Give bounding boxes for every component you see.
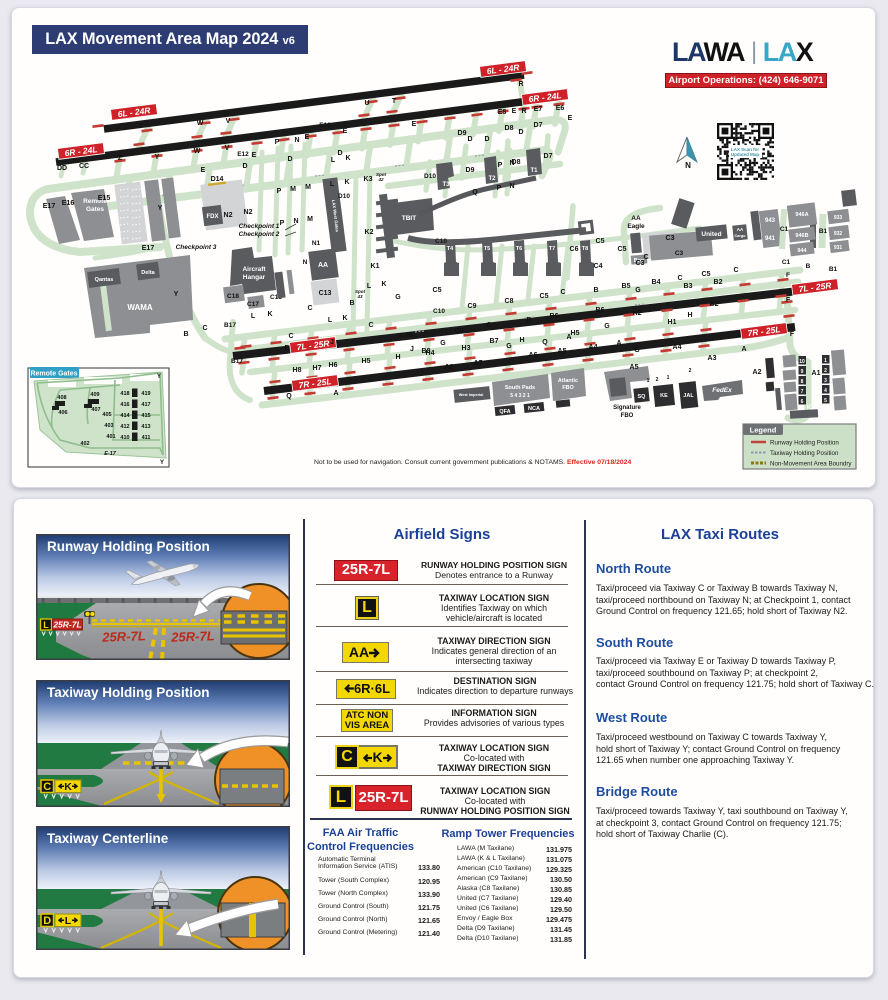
svg-text:D7: D7	[544, 153, 553, 160]
svg-text:W: W	[197, 120, 204, 127]
svg-text:B: B	[349, 300, 354, 307]
svg-text:C5: C5	[433, 287, 442, 294]
svg-text:2: 2	[824, 368, 827, 374]
svg-text:418: 418	[120, 391, 129, 397]
svg-text:D9: D9	[466, 167, 475, 174]
svg-text:H2: H2	[633, 310, 642, 317]
svg-text:E: E	[252, 152, 257, 159]
svg-text:E17: E17	[43, 203, 56, 210]
svg-text:6: 6	[801, 399, 804, 405]
svg-text:Y: Y	[157, 374, 161, 380]
svg-text:K: K	[345, 155, 350, 162]
svg-text:AA: AA	[318, 262, 328, 269]
svg-text:C5: C5	[596, 238, 605, 245]
svg-text:T4: T4	[447, 246, 454, 252]
svg-text:5: 5	[824, 398, 827, 404]
svg-text:5 4 3 2 1: 5 4 3 2 1	[510, 393, 530, 399]
svg-text:TBIT: TBIT	[402, 215, 416, 222]
svg-text:Checkpoint 1: Checkpoint 1	[239, 223, 280, 230]
svg-text:407: 407	[91, 407, 100, 413]
svg-text:Remote Gates: Remote Gates	[30, 371, 77, 378]
svg-text:7R - 25L: 7R - 25L	[747, 324, 781, 338]
svg-text:Q: Q	[542, 339, 548, 346]
svg-text:DD: DD	[57, 165, 67, 172]
svg-text:B6: B6	[596, 307, 605, 314]
svg-text:P: P	[498, 162, 503, 169]
svg-text:E6: E6	[556, 105, 565, 112]
svg-text:Updated Map: Updated Map	[731, 152, 760, 157]
svg-text:Q: Q	[286, 393, 292, 400]
svg-text:A1: A1	[812, 370, 821, 377]
svg-text:Q: Q	[472, 189, 478, 196]
svg-text:K: K	[344, 179, 349, 186]
svg-text:C3: C3	[636, 260, 645, 267]
svg-text:Delta: Delta	[141, 270, 155, 276]
svg-text:C4: C4	[594, 263, 603, 270]
svg-text:Aircraft: Aircraft	[242, 266, 266, 273]
svg-text:L: L	[331, 157, 336, 164]
svg-text:415: 415	[141, 413, 150, 419]
svg-text:L: L	[328, 317, 333, 324]
svg-text:D: D	[43, 915, 51, 927]
svg-text:N: N	[509, 183, 514, 190]
svg-text:K3: K3	[364, 176, 373, 183]
svg-text:6L - 24R: 6L - 24R	[117, 105, 152, 119]
svg-text:W: W	[194, 148, 201, 155]
svg-text:A5: A5	[558, 348, 567, 355]
svg-text:1: 1	[824, 358, 827, 364]
svg-text:Eagle: Eagle	[627, 223, 645, 230]
svg-text:C13: C13	[319, 290, 332, 297]
svg-text:406: 406	[58, 410, 67, 416]
svg-text:944: 944	[797, 248, 807, 254]
svg-text:H: H	[687, 312, 692, 319]
svg-text:A2: A2	[753, 369, 762, 376]
svg-text:NCA: NCA	[528, 406, 540, 412]
svg-text:B1: B1	[819, 228, 828, 235]
svg-text:T3: T3	[442, 182, 450, 188]
svg-text:FBO: FBO	[621, 413, 634, 419]
svg-text:417: 417	[141, 402, 150, 408]
svg-text:G: G	[395, 294, 401, 301]
svg-text:7R - 25L: 7R - 25L	[298, 376, 332, 390]
svg-text:M: M	[307, 216, 313, 223]
svg-text:A7: A7	[474, 360, 483, 367]
svg-text:Y: Y	[139, 123, 144, 130]
svg-text:D: D	[242, 163, 247, 170]
svg-text:H3: H3	[462, 345, 471, 352]
svg-text:B5: B5	[622, 283, 631, 290]
svg-text:E10: E10	[319, 122, 331, 129]
svg-text:F: F	[790, 331, 795, 338]
svg-text:E: E	[512, 108, 517, 115]
svg-text:C17: C17	[247, 301, 259, 308]
svg-text:A8: A8	[445, 364, 454, 371]
svg-text:L: L	[65, 915, 72, 927]
svg-text:408: 408	[57, 395, 66, 401]
svg-text:E12: E12	[237, 151, 249, 158]
svg-text:T5: T5	[484, 246, 490, 252]
svg-text:B2: B2	[710, 301, 719, 308]
svg-text:T: T	[392, 98, 397, 105]
svg-text:P: P	[280, 220, 285, 227]
svg-text:932: 932	[834, 231, 843, 237]
svg-text:T2: T2	[488, 176, 496, 182]
svg-text:7: 7	[801, 389, 804, 395]
svg-text:AA: AA	[631, 215, 641, 222]
svg-text:D: D	[484, 136, 489, 143]
svg-text:Qantas: Qantas	[95, 277, 114, 283]
svg-text:E: E	[201, 167, 206, 174]
svg-text:C: C	[307, 305, 312, 312]
svg-text:Taxiway Centerline: Taxiway Centerline	[47, 831, 169, 846]
svg-text:K: K	[342, 315, 347, 322]
svg-text:405: 405	[102, 412, 111, 418]
svg-text:P: P	[277, 188, 282, 195]
svg-text:A: A	[616, 340, 621, 347]
svg-text:FBO: FBO	[562, 385, 574, 391]
svg-text:C1: C1	[780, 226, 789, 233]
svg-text:7L - 25R: 7L - 25R	[798, 280, 833, 294]
svg-text:P: P	[275, 139, 280, 146]
svg-text:T7: T7	[549, 246, 555, 252]
svg-text:E16: E16	[62, 200, 75, 207]
svg-text:E15: E15	[98, 195, 111, 202]
svg-text:N: N	[685, 161, 691, 170]
svg-text:T1: T1	[530, 168, 538, 174]
svg-text:C3: C3	[666, 235, 675, 242]
svg-text:401: 401	[106, 434, 115, 440]
svg-text:A: A	[741, 346, 746, 353]
svg-text:Taxiway Holding Position: Taxiway Holding Position	[47, 685, 210, 700]
svg-text:E8: E8	[498, 109, 507, 116]
svg-text:25R-7L: 25R-7L	[52, 620, 81, 630]
svg-text:Z: Z	[118, 155, 123, 162]
svg-text:D9: D9	[458, 130, 467, 137]
svg-text:B2: B2	[714, 279, 723, 286]
svg-text:B1: B1	[829, 266, 838, 273]
svg-text:L: L	[43, 620, 49, 630]
svg-text:N: N	[303, 259, 308, 266]
svg-text:E: E	[568, 115, 573, 122]
svg-text:C18: C18	[227, 293, 239, 300]
svg-text:C9: C9	[455, 328, 464, 335]
svg-text:H5: H5	[362, 358, 371, 365]
svg-text:United: United	[701, 231, 721, 238]
svg-text:F: F	[786, 272, 790, 279]
svg-text:413: 413	[141, 424, 150, 430]
svg-text:Cargo: Cargo	[735, 234, 747, 238]
svg-text:U: U	[364, 100, 369, 107]
svg-text:2: 2	[689, 368, 692, 374]
svg-text:Non-Movement Area Boundry: Non-Movement Area Boundry	[770, 461, 852, 468]
svg-text:E-17: E-17	[104, 451, 117, 457]
svg-text:A5: A5	[630, 364, 639, 371]
svg-text:Hangar: Hangar	[243, 274, 266, 281]
svg-text:Gates: Gates	[86, 206, 104, 213]
svg-text:H4: H4	[426, 350, 435, 357]
svg-text:E: E	[412, 121, 417, 128]
svg-text:R: R	[518, 81, 523, 88]
svg-text:K1: K1	[371, 263, 380, 270]
svg-text:K2: K2	[365, 229, 374, 236]
svg-text:West Imperial: West Imperial	[459, 393, 484, 397]
svg-text:9: 9	[801, 369, 804, 375]
svg-text:FDX: FDX	[207, 214, 219, 220]
svg-text:D: D	[518, 129, 523, 136]
svg-text:25R-7L: 25R-7L	[101, 628, 146, 645]
svg-text:J: J	[410, 346, 414, 353]
svg-text:Not to be used for navigation.: Not to be used for navigation. Consult c…	[314, 459, 631, 466]
svg-text:941: 941	[765, 236, 776, 242]
svg-text:C10: C10	[435, 238, 447, 245]
svg-text:Y: Y	[174, 291, 179, 298]
svg-text:8: 8	[801, 379, 804, 385]
svg-text:1: 1	[667, 375, 670, 381]
svg-text:A6: A6	[529, 352, 538, 359]
svg-text:B7: B7	[490, 338, 499, 345]
svg-text:QFA: QFA	[499, 409, 510, 415]
svg-text:L: L	[251, 313, 256, 320]
svg-text:H8: H8	[293, 367, 302, 374]
svg-text:P: P	[497, 185, 502, 192]
svg-text:N: N	[294, 137, 299, 144]
svg-text:C3: C3	[675, 250, 684, 257]
svg-text:E17: E17	[142, 245, 155, 252]
svg-text:D: D	[467, 136, 472, 143]
svg-text:N2: N2	[244, 209, 253, 216]
svg-text:C5: C5	[702, 271, 711, 278]
svg-text:Runway Holding Position: Runway Holding Position	[47, 539, 210, 554]
svg-text:K: K	[267, 311, 272, 318]
svg-text:42: 42	[377, 177, 384, 182]
svg-text:2: 2	[656, 377, 659, 383]
svg-text:F: F	[786, 297, 791, 304]
svg-text:C9: C9	[468, 303, 477, 310]
svg-text:R: R	[521, 108, 526, 115]
svg-text:E7: E7	[534, 106, 543, 113]
svg-text:Y: Y	[155, 154, 160, 161]
svg-text:B: B	[806, 263, 811, 270]
svg-text:943: 943	[765, 218, 776, 224]
svg-text:B: B	[593, 287, 598, 294]
svg-text:H7: H7	[313, 365, 322, 372]
svg-text:N: N	[293, 218, 298, 225]
svg-text:403: 403	[104, 423, 113, 429]
svg-text:C: C	[486, 322, 491, 329]
svg-text:A: A	[333, 390, 338, 397]
svg-text:1: 1	[647, 378, 650, 384]
svg-text:T8: T8	[582, 246, 588, 252]
svg-text:B17: B17	[224, 322, 236, 329]
svg-text:409: 409	[90, 392, 99, 398]
svg-text:C: C	[733, 267, 738, 274]
svg-text:E: E	[305, 134, 310, 141]
svg-text:H: H	[395, 354, 400, 361]
svg-text:B: B	[183, 331, 188, 338]
svg-text:L: L	[330, 181, 335, 188]
svg-text:C1: C1	[782, 259, 791, 266]
svg-text:C10: C10	[400, 332, 412, 339]
svg-text:C: C	[288, 333, 293, 340]
svg-text:A4: A4	[589, 344, 598, 351]
svg-text:C6: C6	[570, 246, 579, 253]
svg-text:4: 4	[824, 388, 827, 394]
svg-text:C: C	[43, 781, 51, 793]
svg-text:B6: B6	[550, 313, 559, 320]
svg-text:A3: A3	[708, 355, 717, 362]
svg-text:B4: B4	[652, 279, 661, 286]
svg-text:N2: N2	[224, 212, 233, 219]
svg-text:J: J	[330, 339, 334, 346]
svg-text:G: G	[635, 287, 641, 294]
svg-text:SQ: SQ	[638, 394, 647, 400]
svg-text:D7: D7	[534, 122, 543, 129]
svg-text:H6: H6	[329, 362, 338, 369]
svg-text:C10: C10	[433, 308, 445, 315]
svg-text:H: H	[519, 337, 524, 344]
svg-text:419: 419	[141, 391, 150, 397]
svg-text:T6: T6	[516, 246, 522, 252]
svg-text:H1: H1	[668, 319, 677, 326]
svg-text:AA: AA	[737, 227, 744, 232]
svg-text:933: 933	[834, 215, 843, 221]
svg-text:B: B	[284, 345, 289, 352]
svg-text:G: G	[604, 323, 610, 330]
svg-text:B3: B3	[684, 283, 693, 290]
svg-text:KE: KE	[660, 393, 668, 399]
svg-text:Taxiway Holding Position: Taxiway Holding Position	[770, 450, 839, 457]
svg-text:K: K	[381, 281, 386, 288]
svg-text:D: D	[287, 156, 292, 163]
svg-text:FedEx: FedEx	[712, 387, 732, 394]
svg-text:931: 931	[834, 245, 843, 251]
svg-text:L: L	[367, 283, 372, 290]
svg-text:Signature: Signature	[613, 405, 641, 411]
svg-text:D: D	[337, 150, 342, 157]
svg-text:D10: D10	[338, 193, 350, 200]
svg-text:D8: D8	[505, 125, 514, 132]
svg-text:K: K	[64, 781, 72, 793]
svg-text:A4: A4	[673, 344, 682, 351]
svg-text:410: 410	[120, 435, 129, 441]
svg-text:B17: B17	[231, 358, 243, 365]
svg-text:H5: H5	[571, 330, 580, 337]
svg-text:411: 411	[142, 435, 151, 441]
svg-text:C5: C5	[540, 293, 549, 300]
svg-text:Legend: Legend	[750, 426, 777, 435]
svg-text:414: 414	[120, 413, 130, 419]
svg-text:Y: Y	[158, 205, 163, 212]
svg-text:M: M	[305, 184, 311, 191]
svg-text:V: V	[226, 118, 231, 125]
svg-text:946B: 946B	[795, 233, 808, 239]
svg-text:412: 412	[120, 424, 129, 430]
svg-text:C: C	[202, 325, 207, 332]
svg-text:Y: Y	[160, 460, 164, 466]
svg-text:Runway Holding Position: Runway Holding Position	[770, 440, 839, 447]
svg-text:G: G	[440, 340, 446, 347]
svg-text:946A: 946A	[795, 212, 808, 218]
svg-text:N1: N1	[312, 240, 321, 247]
svg-text:E: E	[343, 128, 348, 135]
svg-text:JAL: JAL	[683, 393, 694, 399]
svg-text:CC: CC	[79, 163, 89, 170]
svg-text:C5: C5	[618, 246, 627, 253]
svg-text:V: V	[225, 145, 230, 152]
svg-text:C: C	[368, 322, 373, 329]
svg-text:N: N	[509, 160, 514, 167]
svg-text:Checkpoint 3: Checkpoint 3	[176, 244, 217, 251]
svg-text:402: 402	[80, 441, 89, 447]
svg-text:D10: D10	[424, 173, 436, 180]
svg-text:WAMA: WAMA	[127, 303, 153, 312]
svg-text:B: B	[526, 317, 531, 324]
svg-text:3: 3	[824, 378, 827, 384]
svg-text:South Pads: South Pads	[505, 385, 535, 391]
svg-text:C: C	[560, 289, 565, 296]
svg-text:Atlantic: Atlantic	[558, 378, 578, 384]
svg-text:G: G	[634, 347, 640, 354]
svg-text:25R-7L: 25R-7L	[170, 628, 215, 645]
svg-text:C8: C8	[505, 298, 514, 305]
svg-text:C: C	[677, 275, 682, 282]
svg-text:10: 10	[799, 359, 805, 365]
svg-text:43: 43	[356, 294, 363, 299]
svg-text:G: G	[506, 343, 512, 350]
svg-text:Checkpoint 2: Checkpoint 2	[239, 231, 280, 238]
svg-text:M: M	[290, 186, 296, 193]
svg-text:416: 416	[120, 402, 129, 408]
